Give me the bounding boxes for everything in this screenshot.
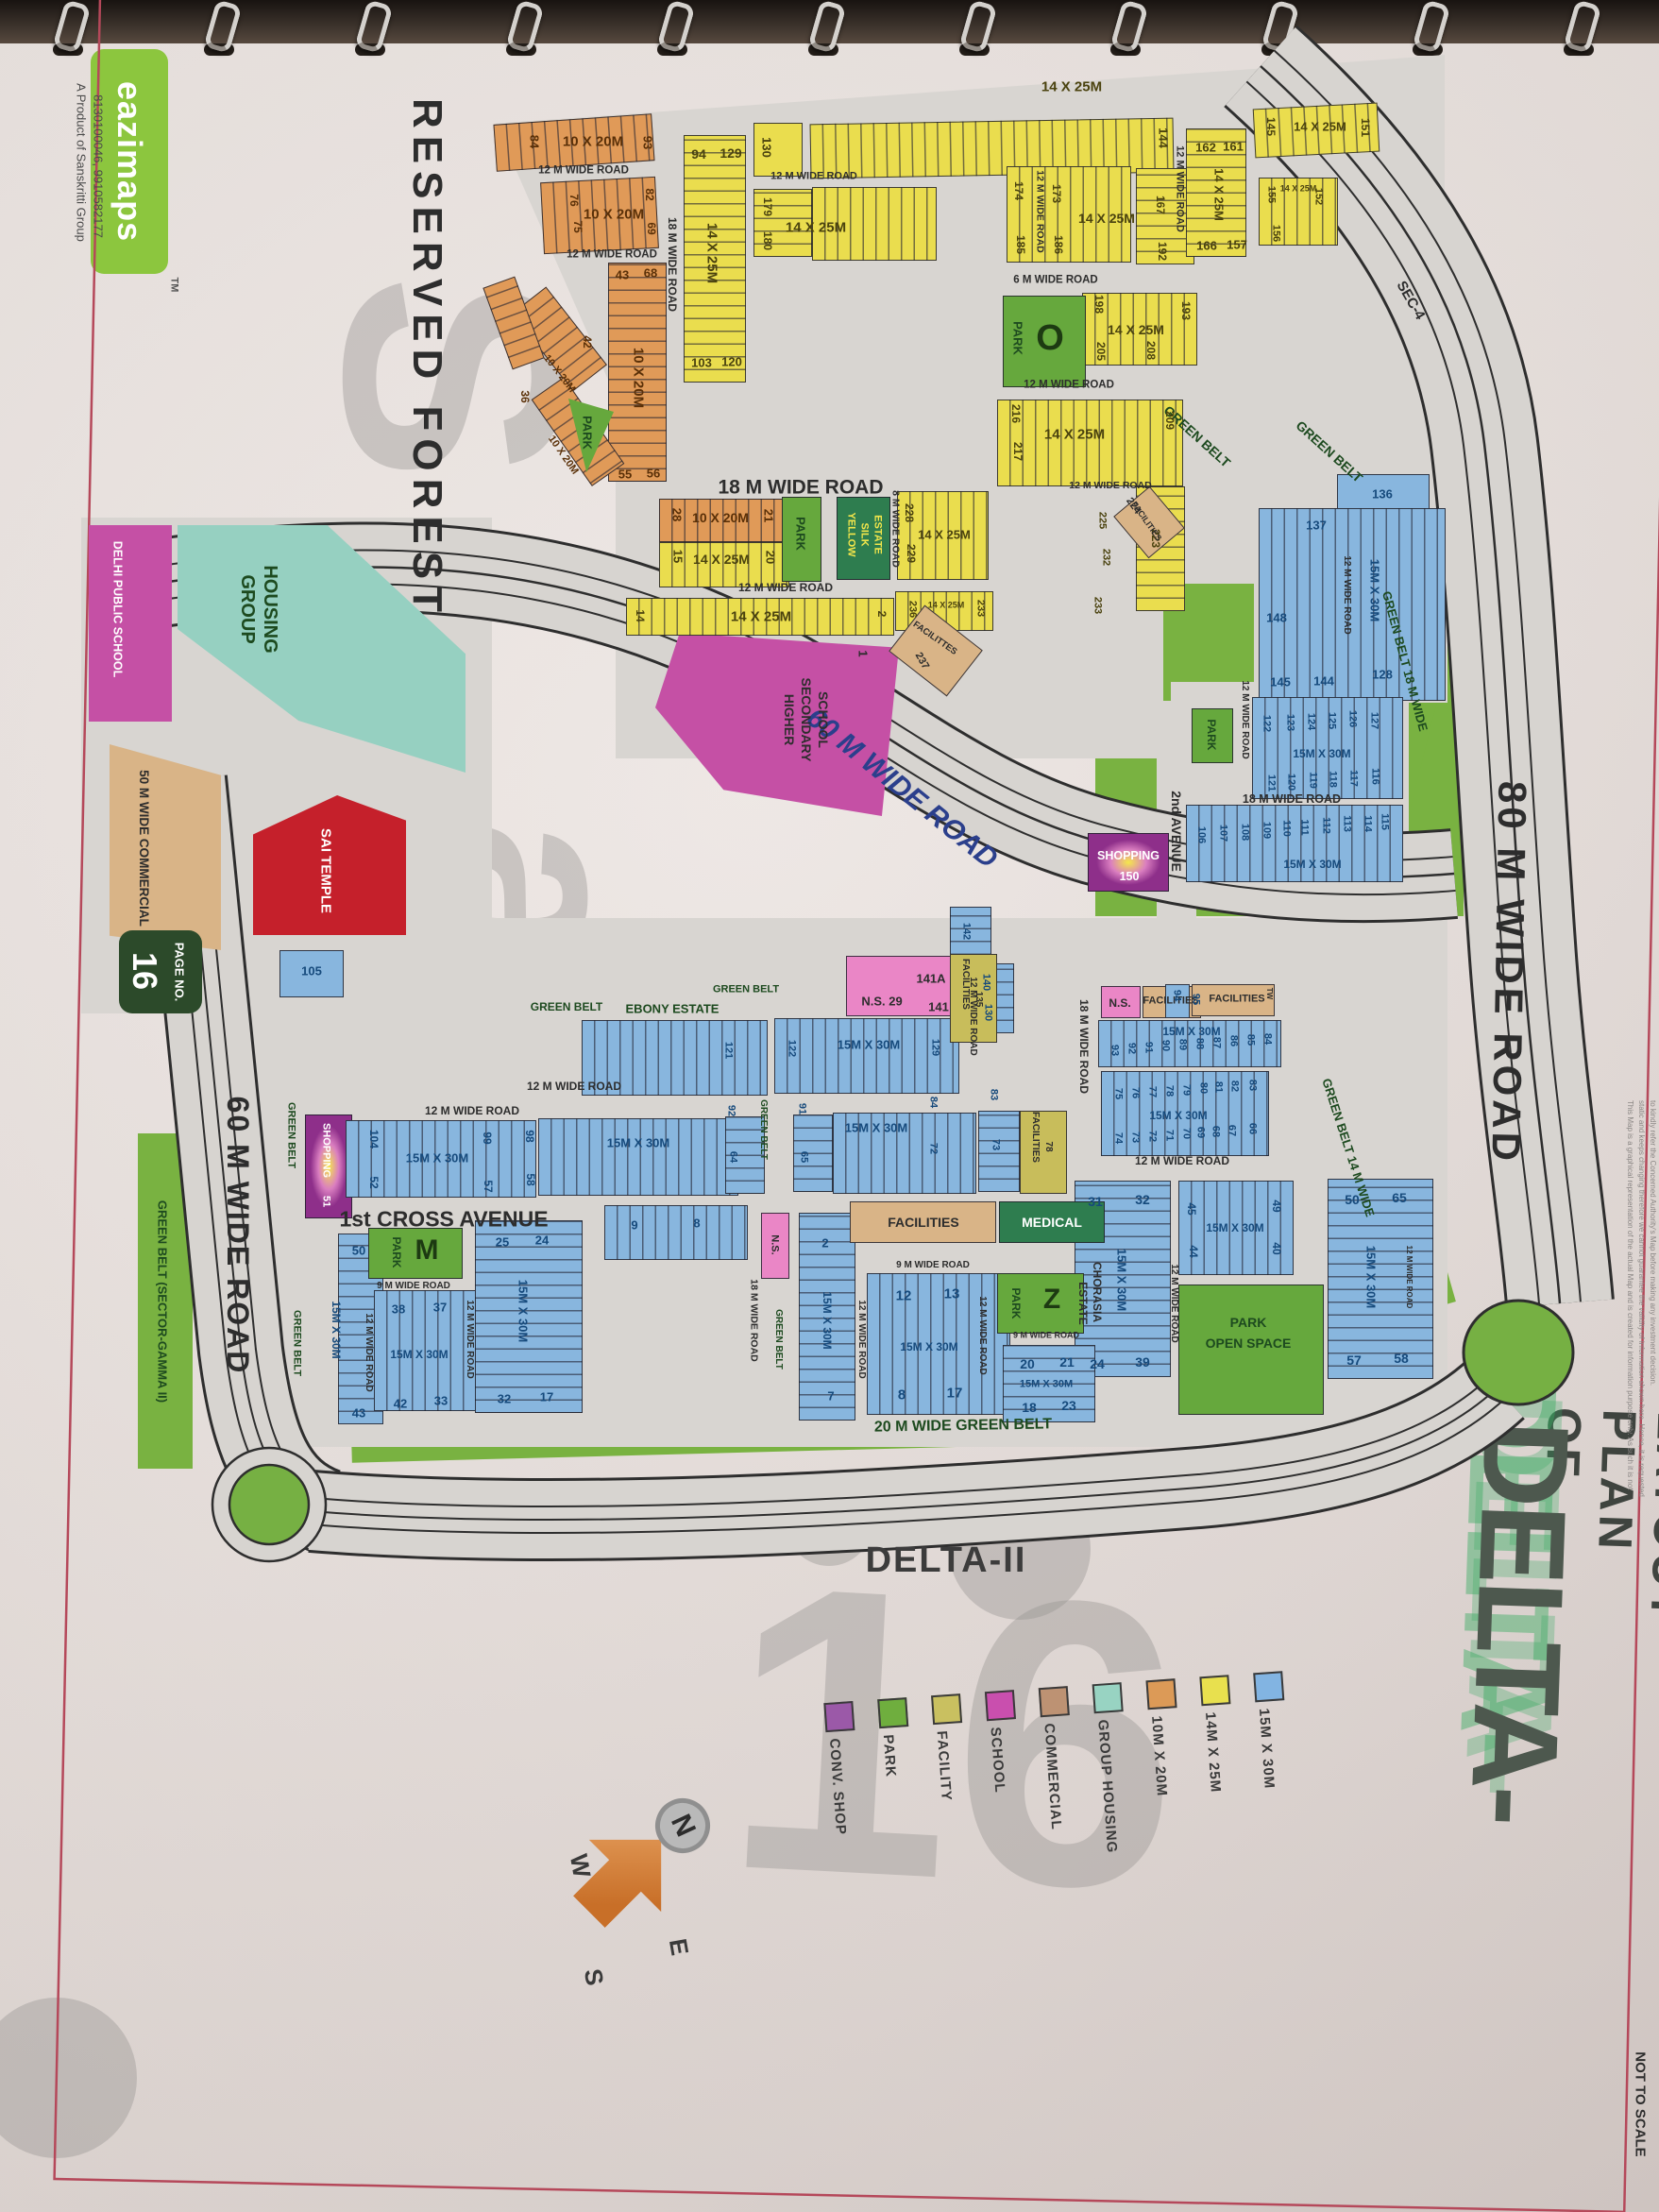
map-label: 104 bbox=[368, 1130, 380, 1149]
map-label: 14 X 25M bbox=[918, 529, 971, 541]
map-label: 13 bbox=[944, 1287, 960, 1302]
map-label: 12 M WIDE ROAD bbox=[538, 165, 629, 177]
blue-block bbox=[978, 1111, 1020, 1192]
map-label: EBONY ESTATE bbox=[626, 1003, 719, 1015]
map-label: 198 bbox=[1093, 295, 1105, 314]
legend-swatch bbox=[1039, 1686, 1070, 1717]
map-label: 15M X 30M bbox=[1365, 1246, 1378, 1308]
disclaimer-line: to kindly refer the Concerned Authority'… bbox=[1649, 1100, 1657, 1629]
map-label: SHOPPING bbox=[321, 1123, 331, 1178]
map-label: 52 bbox=[368, 1176, 380, 1188]
map-label: 14 X 25M bbox=[693, 553, 750, 566]
map-label: 83 bbox=[989, 1089, 999, 1100]
map-label: GROUP bbox=[238, 574, 257, 643]
map-label: 14 X 25M bbox=[1294, 121, 1346, 133]
map-label: 21 bbox=[1059, 1355, 1075, 1369]
map-label: 50 bbox=[352, 1245, 365, 1257]
map-label: 68 bbox=[644, 267, 657, 280]
map-label: PARK bbox=[1206, 719, 1217, 750]
map-label: 12 M WIDE ROAD bbox=[1135, 1155, 1229, 1166]
legend-label: FACILITY bbox=[934, 1730, 955, 1802]
map-label: 9 bbox=[631, 1219, 637, 1232]
map-label: 20 bbox=[1020, 1357, 1035, 1370]
map-label: 14 X 25M bbox=[731, 610, 791, 624]
map-label: 12 M WIDE ROAD bbox=[977, 1296, 987, 1374]
delhi-public-school bbox=[89, 525, 172, 722]
map-label: 157 bbox=[1227, 239, 1247, 251]
map-label: O bbox=[1036, 320, 1064, 356]
map-label: 217 bbox=[1012, 442, 1024, 461]
legend-swatch bbox=[1199, 1675, 1230, 1706]
map-label: 69 bbox=[646, 222, 657, 234]
map-label: 89 bbox=[1177, 1039, 1188, 1050]
map-label: 110 bbox=[1281, 820, 1292, 837]
legend-label: COMMERCIAL bbox=[1041, 1723, 1064, 1830]
map-label: 8 bbox=[898, 1388, 906, 1403]
map-label: 9 M WIDE ROAD bbox=[377, 1282, 450, 1291]
map-label: FACILITIES bbox=[1209, 995, 1264, 1005]
map-label: 32 bbox=[1135, 1193, 1150, 1206]
map-label: 15M X 30M bbox=[821, 1291, 833, 1349]
map-label: 208 bbox=[1145, 341, 1157, 360]
roundabout-left bbox=[212, 1448, 326, 1561]
map-label: 150 bbox=[1120, 871, 1140, 883]
map-legend: CONV. SHOPPARKFACILITYSCHOOLCOMMERCIALGR… bbox=[823, 1671, 1294, 1872]
map-label: 137 bbox=[1306, 519, 1327, 532]
disclaimer-line: This Map is a graphical representation o… bbox=[1626, 1100, 1634, 1629]
map-photo: Sa16RESERVED FOREST80 M WIDE ROADSEC-460… bbox=[0, 0, 1659, 2212]
map-label: 122 bbox=[787, 1040, 797, 1057]
map-label: 233 bbox=[1092, 597, 1103, 614]
map-label: 18 M WIDE ROAD bbox=[1078, 999, 1090, 1094]
map-label: 69 bbox=[1195, 1127, 1206, 1138]
map-label: 43 bbox=[352, 1407, 365, 1420]
map-label: MEDICAL bbox=[1022, 1216, 1082, 1229]
map-label: 91 bbox=[797, 1103, 807, 1115]
map-label: FACILITIES bbox=[1030, 1112, 1040, 1163]
map-label: 21 bbox=[763, 509, 775, 522]
map-label: 73 bbox=[1130, 1132, 1141, 1143]
map-label: 152 bbox=[1313, 188, 1324, 205]
map-label: 192 bbox=[1157, 242, 1168, 261]
map-label: 8130100046, 9910582177 bbox=[93, 94, 105, 238]
map-label: 87 bbox=[1211, 1037, 1222, 1048]
map-label: GREEN BELT bbox=[758, 1099, 768, 1160]
map-label: 39 bbox=[1135, 1355, 1150, 1369]
map-label: 9 M WIDE ROAD bbox=[896, 1261, 970, 1270]
map-label: 15M X 30M bbox=[1206, 1222, 1263, 1234]
map-label: 76 bbox=[568, 194, 580, 206]
map-label: 15M X 30M bbox=[607, 1137, 669, 1149]
map-label: 92 bbox=[1126, 1043, 1137, 1054]
layout-map: Sa16RESERVED FOREST80 M WIDE ROADSEC-460… bbox=[0, 0, 1659, 2212]
map-label: 12 M WIDE ROAD bbox=[425, 1105, 519, 1116]
map-label: 130 bbox=[983, 1004, 993, 1021]
map-label: 120 bbox=[721, 356, 742, 368]
map-label: 118 bbox=[1328, 771, 1338, 788]
map-label: 12 M WIDE ROAD bbox=[1024, 380, 1114, 391]
map-label: GREEN BELT bbox=[531, 1001, 602, 1012]
map-label: 1 bbox=[857, 650, 870, 656]
map-label: PARK bbox=[795, 517, 807, 551]
map-label: GREEN BELT bbox=[292, 1310, 302, 1376]
map-label: 94 bbox=[691, 147, 706, 161]
map-label: 66 bbox=[1247, 1123, 1258, 1134]
map-label: RESERVED FOREST bbox=[406, 98, 448, 620]
map-label: PAGE NO. bbox=[174, 943, 186, 1002]
map-label: 12 M WIDE ROAD bbox=[738, 582, 833, 593]
legend-swatch bbox=[823, 1701, 855, 1732]
map-label: 84 bbox=[529, 135, 541, 148]
map-label: 161 bbox=[1223, 141, 1244, 153]
map-label: GREEN BELT (SECTOR-GAMMA II) bbox=[157, 1200, 169, 1403]
map-label: 56 bbox=[647, 468, 660, 480]
map-label: 17 bbox=[947, 1387, 963, 1401]
map-label: 141A bbox=[916, 973, 945, 985]
map-label: 232 bbox=[1101, 549, 1111, 566]
map-label: 179 bbox=[762, 197, 773, 216]
legend-swatch bbox=[931, 1693, 962, 1725]
map-label: 128 bbox=[1372, 669, 1393, 681]
map-label: 45 bbox=[1186, 1202, 1197, 1215]
map-label: ESTATE bbox=[1077, 1282, 1089, 1325]
map-label: 50 bbox=[1345, 1193, 1360, 1206]
map-label: 14 X 25M bbox=[786, 221, 846, 235]
legend-swatch bbox=[1253, 1671, 1284, 1702]
legend-swatch bbox=[1145, 1678, 1177, 1710]
map-label: 95 bbox=[1191, 994, 1201, 1005]
map-label: 80 M WIDE ROAD bbox=[1485, 781, 1532, 1166]
map-label: 10 X 20M bbox=[692, 511, 749, 524]
map-label: 123 bbox=[1285, 714, 1295, 731]
map-label: 145 bbox=[1270, 676, 1291, 689]
map-label: 122 bbox=[1261, 715, 1272, 732]
legend-item: 14M X 25M bbox=[1199, 1675, 1240, 1846]
map-label: 15M X 30M bbox=[838, 1039, 900, 1051]
map-label: 75 bbox=[1113, 1088, 1124, 1099]
map-label: 185 bbox=[1015, 235, 1026, 254]
map-label: 18 M WIDE ROAD bbox=[1243, 793, 1341, 806]
map-label: 8 bbox=[693, 1217, 700, 1230]
map-label: 12 M WIDE ROAD bbox=[1069, 481, 1152, 491]
map-label: 142 bbox=[961, 923, 972, 940]
map-label: GREEN BELT bbox=[713, 985, 779, 995]
map-label: 127 bbox=[1369, 712, 1380, 729]
map-label: 36 bbox=[519, 390, 531, 402]
map-label: 167 bbox=[1155, 196, 1166, 214]
map-label: 121 bbox=[723, 1042, 734, 1059]
map-label: 144 bbox=[1313, 675, 1334, 688]
map-label: 12 M WIDE ROAD bbox=[770, 172, 857, 182]
roundabout-bottom-right bbox=[1464, 1301, 1573, 1404]
legend-swatch bbox=[877, 1697, 908, 1728]
map-label: 144 bbox=[1158, 128, 1170, 148]
map-label: 145 bbox=[1265, 117, 1277, 136]
map-label: SCHOOL bbox=[817, 691, 830, 748]
map-label: 86 bbox=[1228, 1035, 1239, 1046]
map-label: 2 bbox=[876, 611, 888, 618]
map-label: 15M X 30M bbox=[1369, 559, 1381, 621]
map-label: 82 bbox=[644, 188, 655, 200]
map-label: FACILITIES bbox=[888, 1216, 958, 1229]
map-label: 7 bbox=[827, 1390, 834, 1403]
map-label: 12 M WIDE ROAD bbox=[1405, 1246, 1413, 1309]
map-label: 8 M WIDE ROAD bbox=[890, 490, 901, 568]
map-label: 51 bbox=[321, 1196, 331, 1207]
map-label: 141 bbox=[928, 1001, 949, 1013]
map-label: 57 bbox=[1346, 1353, 1362, 1367]
legend-label: 14M X 25M bbox=[1202, 1711, 1224, 1794]
map-label: 14 X 25M bbox=[1041, 80, 1102, 94]
map-label: 116 bbox=[1370, 768, 1380, 785]
map-label: 121 bbox=[1266, 774, 1277, 791]
map-label: DELHI PUBLIC SCHOOL bbox=[111, 541, 124, 677]
map-label: 71 bbox=[1164, 1130, 1175, 1141]
map-label: CHORASIA bbox=[1092, 1262, 1103, 1322]
map-label: 18 M WIDE ROAD bbox=[667, 217, 678, 312]
map-label: 10 X 20M bbox=[584, 208, 644, 222]
map-label: YELLOW bbox=[846, 512, 856, 556]
map-label: 43 bbox=[616, 269, 629, 281]
legend-swatch bbox=[1092, 1682, 1124, 1713]
map-label: GREEN BELT bbox=[773, 1309, 783, 1370]
map-label: 117 bbox=[1348, 770, 1359, 787]
map-label: 72 bbox=[928, 1143, 939, 1154]
map-label: 14 bbox=[635, 609, 646, 621]
blue-block bbox=[604, 1205, 748, 1260]
map-label: 33 bbox=[434, 1395, 448, 1407]
map-label: 82 bbox=[1229, 1080, 1240, 1092]
map-label: A Product of Sanskritti Group bbox=[76, 83, 88, 242]
map-label: 92 bbox=[726, 1105, 736, 1116]
map-label: 60 M WIDE ROAD bbox=[223, 1097, 253, 1375]
map-label: 23 bbox=[1061, 1399, 1076, 1412]
blue-block bbox=[538, 1118, 738, 1196]
map-label: 81 bbox=[1213, 1081, 1224, 1093]
map-label: 2 bbox=[821, 1237, 828, 1250]
map-label: 88 bbox=[1194, 1038, 1205, 1049]
map-label: N.S. bbox=[1109, 997, 1130, 1009]
map-label: 28 bbox=[671, 508, 684, 521]
map-label: 15M X 30M bbox=[1293, 748, 1350, 759]
map-label: 65 bbox=[799, 1151, 809, 1163]
map-label: 18 M WIDE ROAD bbox=[749, 1279, 759, 1362]
map-label: 98 bbox=[524, 1130, 535, 1142]
map-label: M bbox=[415, 1236, 439, 1265]
map-label: 236 bbox=[907, 601, 918, 618]
legend-swatch bbox=[985, 1690, 1016, 1721]
map-label: 24 bbox=[535, 1234, 549, 1247]
map-label: 228 bbox=[904, 503, 915, 522]
map-label: 108 bbox=[1240, 824, 1250, 841]
legend-label: PARK bbox=[880, 1734, 899, 1778]
map-label: 55 bbox=[618, 468, 632, 481]
map-label: 64 bbox=[728, 1151, 738, 1163]
map-label: 31 bbox=[1088, 1195, 1103, 1208]
map-label: 109 bbox=[1261, 822, 1272, 839]
map-label: 14 X 25M bbox=[1108, 323, 1164, 336]
map-label: 166 bbox=[1196, 240, 1217, 252]
map-label: 111 bbox=[1299, 819, 1310, 835]
map-label: 38 bbox=[392, 1303, 405, 1316]
map-label: 12 M WIDE ROAD bbox=[1035, 170, 1045, 253]
map-label: 15M X 30M bbox=[330, 1301, 342, 1358]
map-label: 12 M WIDE ROAD bbox=[527, 1080, 621, 1092]
map-label: 173 bbox=[1051, 184, 1062, 203]
map-label: 2nd AVENUE bbox=[1170, 791, 1183, 872]
map-label: 112 bbox=[1321, 817, 1331, 834]
map-label: 12 bbox=[896, 1289, 912, 1303]
map-label: 94 bbox=[1172, 990, 1182, 1001]
map-label: HIGHER bbox=[783, 694, 796, 745]
map-label: 18 bbox=[1022, 1401, 1037, 1414]
map-label: 162 bbox=[1195, 142, 1216, 154]
map-label: 15M X 30M bbox=[390, 1349, 448, 1360]
map-label: PARK bbox=[582, 416, 594, 450]
map-label: 67 bbox=[1227, 1125, 1237, 1136]
map-label: 225 bbox=[1097, 512, 1108, 529]
map-label: HOUSING bbox=[261, 565, 279, 653]
map-label: 12 M WIDE ROAD bbox=[1240, 680, 1249, 758]
map-label: 80 bbox=[1198, 1082, 1209, 1094]
map-label: Z bbox=[1043, 1285, 1060, 1314]
map-label: 14 X 25M bbox=[1213, 168, 1226, 221]
map-label: 15M X 30M bbox=[1149, 1110, 1207, 1121]
map-label: 70 bbox=[1181, 1128, 1192, 1139]
map-label: 12 M WIDE ROAD bbox=[364, 1313, 373, 1391]
map-label: 180 bbox=[762, 231, 773, 250]
map-label: 74 bbox=[1113, 1132, 1124, 1144]
map-label: 136 bbox=[1372, 488, 1393, 501]
map-label: 15M X 30M bbox=[1116, 1249, 1128, 1311]
legend-item: 10M X 20M bbox=[1145, 1678, 1186, 1850]
map-label: 155 bbox=[1266, 186, 1277, 203]
map-label: ESTATE bbox=[872, 515, 883, 554]
commercial-50m bbox=[110, 744, 221, 950]
map-label: SHOPPING bbox=[1097, 850, 1160, 862]
map-label: 42 bbox=[582, 335, 593, 348]
legend-label: 10M X 20M bbox=[1148, 1715, 1170, 1797]
legend-label: GROUP HOUSING bbox=[1094, 1719, 1120, 1854]
map-label: 12 M WIDE ROAD bbox=[567, 249, 657, 261]
map-label: 15M X 30M bbox=[1020, 1380, 1073, 1390]
map-label: 14 X 25M bbox=[1280, 185, 1317, 194]
map-label: 15M X 30M bbox=[900, 1341, 957, 1353]
map-label: 15M X 30M bbox=[1162, 1026, 1220, 1037]
legend-label: SCHOOL bbox=[988, 1727, 1008, 1794]
map-label: 14 X 25M bbox=[928, 602, 965, 610]
map-label: 9 M WIDE ROAD bbox=[1013, 1332, 1079, 1340]
map-label: 77 bbox=[1147, 1086, 1158, 1097]
map-label: 72 bbox=[1147, 1131, 1158, 1142]
map-label: 156 bbox=[1271, 225, 1281, 242]
map-label: 16 bbox=[127, 952, 161, 990]
map-label: 73 bbox=[990, 1139, 1001, 1150]
legend-item: COMMERCIAL bbox=[1039, 1686, 1079, 1858]
map-label: 229 bbox=[906, 544, 917, 563]
map-label: 32 bbox=[498, 1393, 511, 1405]
map-label: 40 bbox=[1271, 1242, 1282, 1254]
map-label: 10 X 20M bbox=[563, 135, 623, 149]
legend-item: SCHOOL bbox=[985, 1690, 1025, 1862]
map-label: 14 X 25M bbox=[705, 223, 719, 283]
map-label: 76 bbox=[1130, 1087, 1141, 1098]
map-label: OPEN SPACE bbox=[1206, 1336, 1292, 1350]
map-label: 57 bbox=[482, 1180, 494, 1192]
map-label: 125 bbox=[1327, 712, 1337, 729]
map-label: 42 bbox=[394, 1398, 407, 1410]
map-label: 58 bbox=[525, 1173, 536, 1185]
map-label: 15M X 30M bbox=[517, 1280, 530, 1342]
map-label: 84 bbox=[928, 1097, 939, 1108]
map-label: 174 bbox=[1013, 181, 1024, 200]
map-label: 17 bbox=[540, 1391, 553, 1404]
map-label: 68 bbox=[1210, 1126, 1221, 1137]
map-label: PARK bbox=[1010, 1287, 1022, 1319]
map-label: 15M X 30M bbox=[845, 1122, 907, 1134]
map-label: 78 bbox=[1043, 1141, 1053, 1151]
map-label: 114 bbox=[1363, 815, 1373, 832]
legend-item: PARK bbox=[877, 1697, 918, 1869]
disclaimer-line: static and keeps changing therefore we c… bbox=[1637, 1100, 1646, 1629]
map-label: 12 M WIDE ROAD bbox=[856, 1300, 866, 1378]
map-label: TW bbox=[1265, 988, 1273, 999]
map-label: 37 bbox=[433, 1302, 447, 1314]
map-label: DELTA-II bbox=[866, 1542, 1027, 1578]
map-label: PARK bbox=[1012, 321, 1024, 355]
map-label: 106 bbox=[1196, 826, 1207, 843]
map-label: 91 bbox=[1143, 1042, 1154, 1053]
map-label: N.S. 29 bbox=[861, 995, 902, 1008]
map-label: 75 bbox=[572, 220, 584, 232]
map-label: 79 bbox=[1181, 1084, 1192, 1096]
map-label: 10 X 20M bbox=[632, 348, 646, 408]
map-label: SAI TEMPLE bbox=[319, 828, 333, 913]
map-label: 84 bbox=[1262, 1033, 1273, 1045]
map-label: 15 bbox=[672, 550, 685, 563]
blue-block bbox=[1259, 508, 1446, 701]
map-label: 85 bbox=[1245, 1034, 1256, 1046]
yellow-block bbox=[997, 400, 1183, 486]
map-label: 151 bbox=[1360, 118, 1371, 137]
map-label: 140 bbox=[981, 974, 991, 991]
map-label: 129 bbox=[719, 146, 741, 160]
map-label: N.S. bbox=[770, 1234, 780, 1254]
map-label: FACILITIES bbox=[960, 959, 970, 1010]
map-label: 119 bbox=[1308, 772, 1318, 789]
map-label: 115 bbox=[1380, 813, 1390, 830]
map-label: 129 bbox=[930, 1039, 940, 1056]
map-label: 65 bbox=[1392, 1191, 1407, 1204]
map-label: 193 bbox=[1180, 301, 1192, 320]
map-label: 1st CROSS AVENUE bbox=[339, 1209, 548, 1231]
map-label: 44 bbox=[1188, 1245, 1199, 1257]
map-label: 12 M WIDE ROAD bbox=[465, 1300, 474, 1378]
map-label: 113 bbox=[1342, 815, 1352, 832]
legend-item: FACILITY bbox=[931, 1693, 972, 1865]
map-label: 120 bbox=[1286, 774, 1296, 791]
map-label: 18 M WIDE ROAD bbox=[718, 478, 883, 498]
map-label: 20 M WIDE GREEN BELT bbox=[874, 1417, 1052, 1435]
map-label: 12 M WIDE ROAD bbox=[1342, 555, 1351, 634]
map-label: 58 bbox=[1394, 1352, 1409, 1365]
map-label: 107 bbox=[1218, 825, 1228, 842]
map-label: 15M X 30M bbox=[406, 1152, 468, 1165]
map-label: 93 bbox=[642, 136, 654, 149]
map-label: 186 bbox=[1053, 235, 1064, 254]
map-label: 49 bbox=[1271, 1200, 1282, 1212]
map-label: 148 bbox=[1266, 612, 1287, 624]
